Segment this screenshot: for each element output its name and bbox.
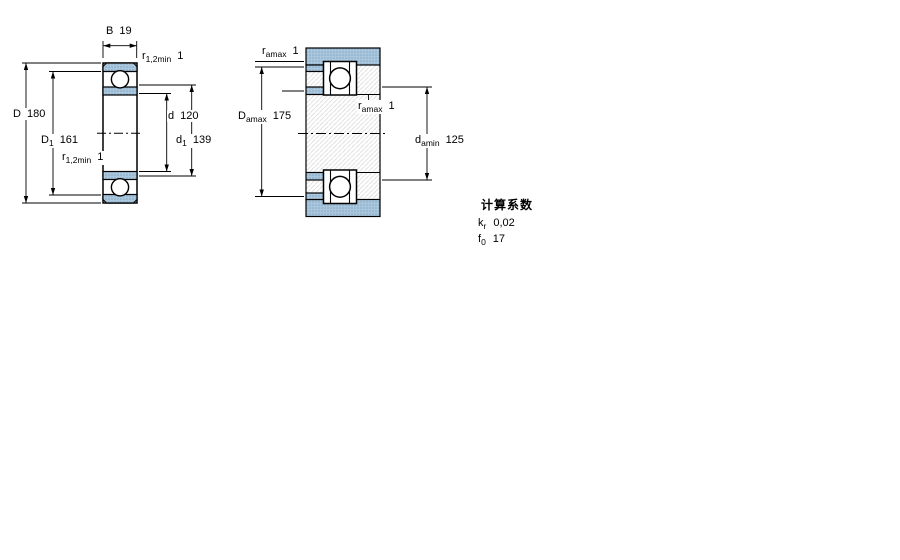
drawing-linework [0, 0, 900, 560]
abutment-figure [255, 48, 432, 217]
dim-label-Damax: Damax175 [237, 110, 292, 124]
dim-label-d1: d1139 [175, 134, 212, 148]
dimension-B [103, 41, 137, 58]
calculation-factor-f0: f017 [478, 233, 505, 247]
calculation-factor-kr: kr0,02 [478, 217, 515, 231]
shaft-shoulder-top [306, 87, 324, 95]
ball-top [111, 71, 128, 88]
dimension-Damax [255, 67, 304, 197]
dim-label-ramax-mid: ramax1 [357, 100, 396, 114]
housing-shoulder-top [306, 65, 324, 72]
bearing-technical-drawing: B19 r1,2min1 D180 D1161 d120 d1139 r1,2m… [0, 0, 900, 560]
ball-bottom-mounted [330, 176, 351, 197]
calculation-factors-title: 计算系数 [481, 196, 533, 213]
dim-label-ramax-top: ramax1 [261, 45, 300, 59]
dim-label-d: d120 [167, 110, 199, 122]
dim-label-B: B19 [105, 25, 133, 37]
dim-label-r12min-bottom: r1,2min1 [61, 151, 104, 165]
dim-label-D: D180 [12, 108, 46, 120]
dim-label-D1: D1161 [40, 134, 79, 148]
dim-label-damin: damin125 [414, 134, 465, 148]
dimension-D [22, 63, 101, 203]
shaft-shoulder-bottom [306, 173, 324, 181]
dimension-d [139, 94, 171, 172]
bearing-bottom-section [324, 170, 357, 204]
housing-shoulder-bottom [306, 193, 324, 200]
ball-bottom [111, 179, 128, 196]
dim-label-r12min-top: r1,2min1 [141, 50, 184, 64]
ball-top-mounted [330, 68, 351, 89]
bearing-top-section [324, 62, 357, 96]
